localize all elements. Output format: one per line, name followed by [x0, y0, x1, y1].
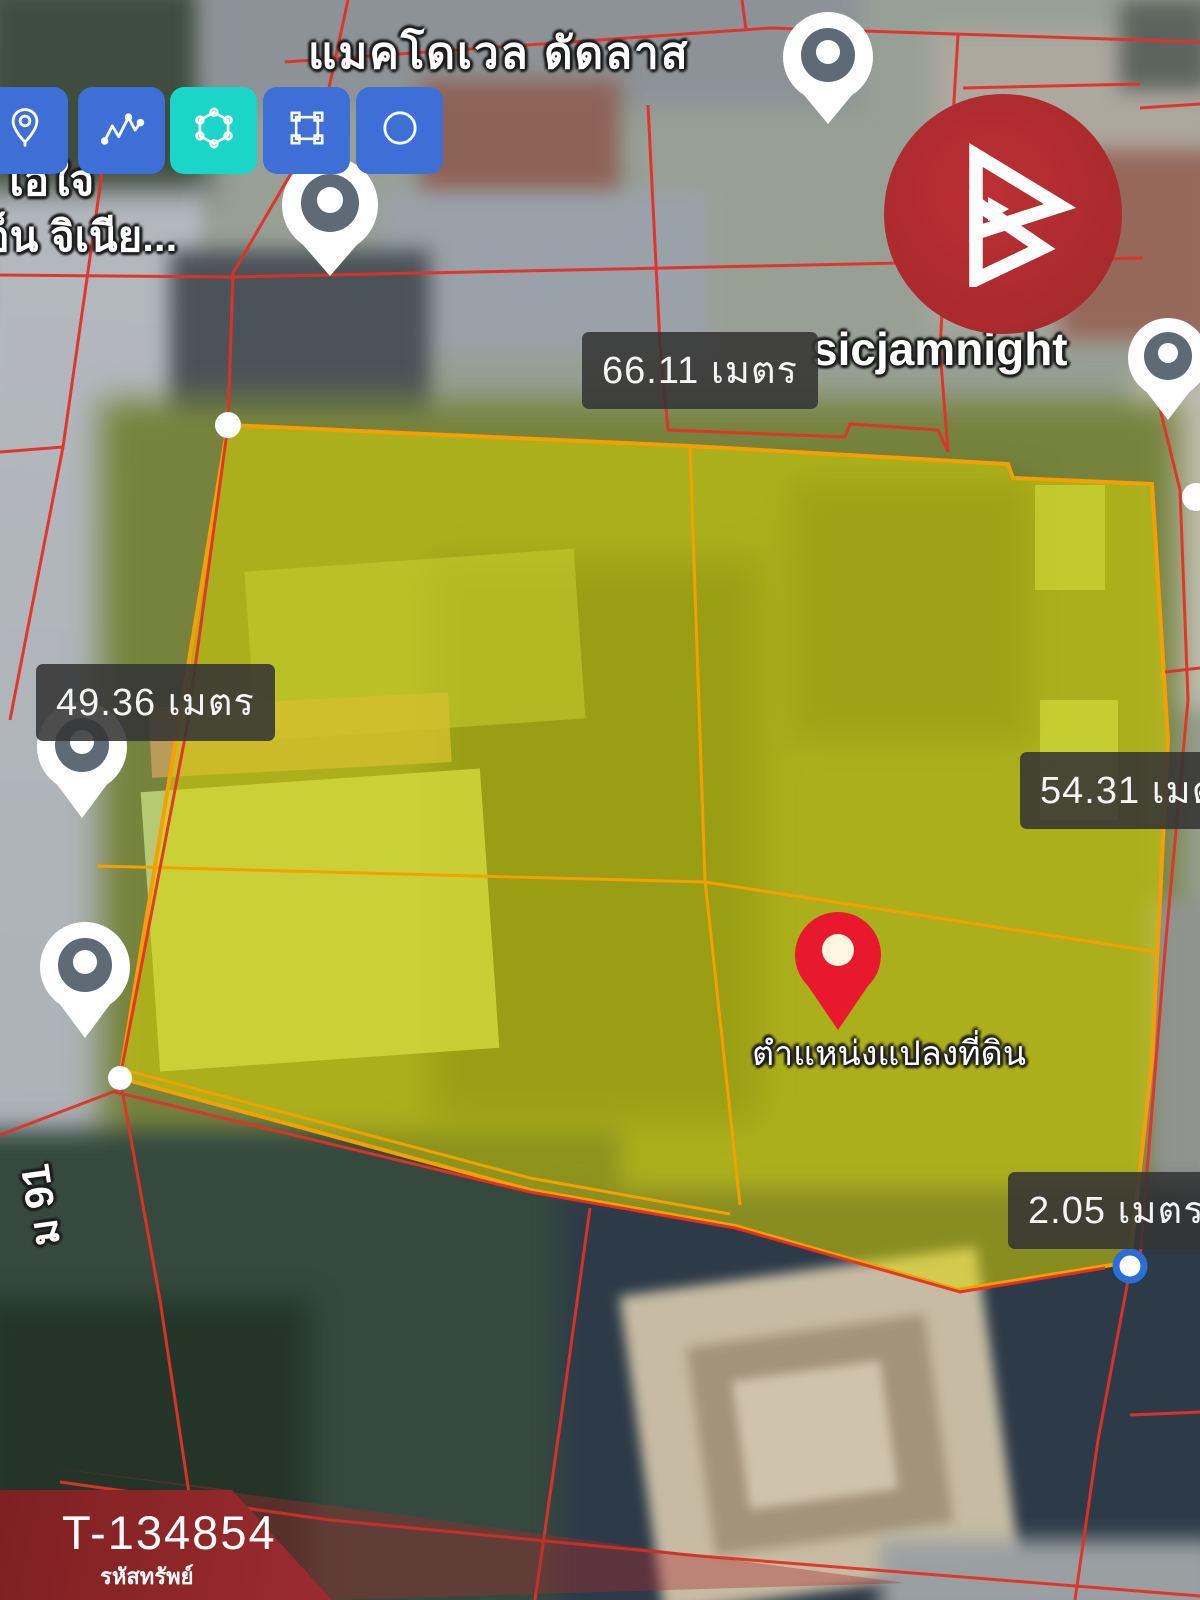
marker-tool-button[interactable]: [0, 87, 68, 174]
place-name-left-line2: เอ็น จิเนีย...: [0, 204, 177, 270]
polyline-icon: [96, 102, 148, 159]
measurement-right: 54.31 เมตร: [1020, 752, 1200, 829]
rectangle-icon: [281, 102, 333, 159]
vertex-dot-selected: [1116, 1252, 1144, 1280]
polygon-icon: [187, 101, 241, 160]
parcel-polygon[interactable]: [97, 425, 1168, 1290]
road-name-vertical-label: ม 91: [3, 1160, 78, 1250]
measurement-bottom: 2.05 เมตร: [1008, 1172, 1200, 1249]
property-code-caption: รหัสทรัพย์: [100, 1559, 193, 1594]
circle-icon: [374, 102, 426, 159]
street-name-label: แมคโดเวล ดัดลาส: [308, 18, 690, 88]
rectangle-tool-button[interactable]: [263, 87, 350, 174]
polygon-tool-button[interactable]: [170, 87, 257, 174]
map-pin[interactable]: [40, 922, 130, 1038]
location-pin-icon: [0, 102, 51, 159]
map-pin[interactable]: [282, 157, 378, 276]
circle-tool-button[interactable]: [356, 87, 443, 174]
property-code: T-134854: [62, 1505, 277, 1560]
measurement-left: 49.36 เมตร: [36, 664, 275, 741]
satellite-map[interactable]: แมคโดเวล ดัดลาส sicjamnight ล เอใจ เอ็น …: [0, 0, 1200, 1600]
vertex-dot: [1182, 483, 1200, 511]
property-code-banner: T-134854 รหัสทรัพย์: [0, 1455, 940, 1600]
parcel-pin-caption: ตำแหน่งแปลงที่ดิน: [752, 1026, 1026, 1080]
vertex-dot: [215, 412, 241, 438]
measurement-top: 66.11 เมตร: [582, 332, 818, 409]
map-pin[interactable]: [783, 12, 873, 124]
map-pin[interactable]: [1128, 318, 1200, 420]
polyline-tool-button[interactable]: [78, 87, 165, 174]
brand-logo: [884, 94, 1122, 334]
vertex-dot: [108, 1066, 132, 1090]
triangle-b-logo-icon: [928, 137, 1078, 292]
